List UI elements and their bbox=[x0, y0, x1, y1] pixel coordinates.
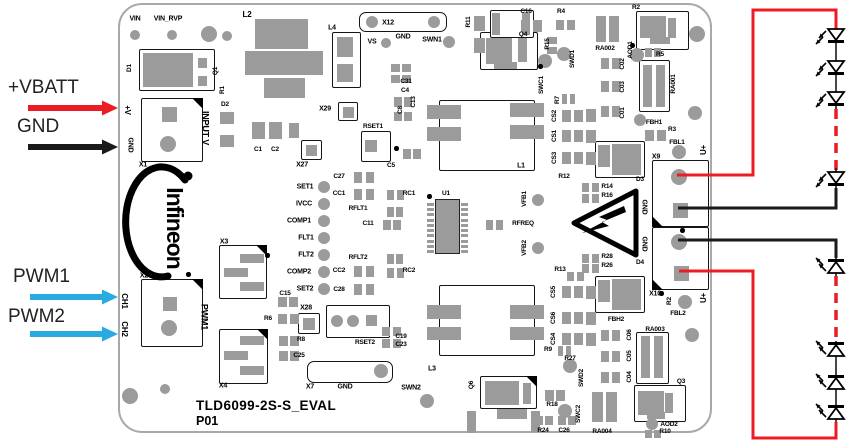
smd-pad bbox=[474, 16, 485, 31]
smd-pad bbox=[601, 106, 609, 117]
test-point bbox=[318, 181, 330, 193]
smd-pad bbox=[366, 284, 374, 295]
silkscreen-label: RA002 bbox=[595, 46, 614, 53]
silkscreen-label: SWD2 bbox=[579, 369, 586, 387]
test-point bbox=[347, 315, 359, 327]
led-part bbox=[828, 29, 844, 40]
silkscreen-label: CS2 bbox=[552, 110, 559, 122]
ic-pin bbox=[427, 219, 434, 222]
silkscreen-label: COMP1 bbox=[287, 218, 311, 225]
silkscreen-label: R5 bbox=[656, 52, 664, 59]
led-part bbox=[828, 408, 844, 419]
silkscreen-label: X1 bbox=[139, 162, 147, 169]
led-symbol bbox=[816, 172, 844, 187]
test-point bbox=[428, 16, 440, 28]
test-point bbox=[160, 136, 176, 152]
silkscreen-label: U1 bbox=[442, 191, 450, 198]
silkscreen-label: R8 bbox=[297, 337, 305, 344]
silkscreen-label: Q1 bbox=[213, 67, 220, 75]
smd-pad bbox=[586, 130, 596, 143]
silkscreen-label: FBL1 bbox=[669, 140, 684, 147]
silkscreen-label: R4 bbox=[557, 9, 565, 16]
smd-pad bbox=[354, 284, 362, 295]
silkscreen-label: Q3 bbox=[677, 379, 685, 386]
ic-pin bbox=[427, 224, 434, 227]
smd-pad bbox=[598, 280, 610, 302]
test-point bbox=[318, 215, 330, 227]
smd-pad bbox=[290, 314, 299, 324]
smd-pad bbox=[393, 220, 401, 230]
silkscreen-label: C26 bbox=[558, 428, 569, 435]
silkscreen-label: COMP2 bbox=[287, 269, 311, 276]
smd-pad bbox=[366, 315, 377, 326]
smd-pad bbox=[264, 78, 305, 98]
silkscreen-label: CH2 bbox=[120, 321, 128, 336]
pwm2-arrow-head bbox=[102, 327, 118, 342]
silkscreen-label: GND bbox=[641, 200, 648, 215]
smd-pad bbox=[612, 372, 620, 383]
silkscreen-label: INPUT V bbox=[201, 111, 210, 145]
smd-pad bbox=[592, 194, 599, 203]
smd-pad bbox=[609, 16, 619, 42]
test-point bbox=[366, 16, 378, 28]
ic-pin bbox=[427, 234, 434, 237]
test-point bbox=[558, 404, 572, 418]
corner-mark bbox=[256, 245, 267, 256]
board-title: TLD6099-2S-S_EVAL bbox=[196, 398, 336, 413]
ic-pin bbox=[461, 203, 468, 206]
smd-pad bbox=[612, 351, 620, 362]
smd-pad bbox=[645, 130, 654, 141]
smd-pad bbox=[427, 105, 461, 119]
smd-pad bbox=[592, 254, 599, 263]
silkscreen-label: AOD1 bbox=[628, 41, 635, 58]
silkscreen-label: IVCC bbox=[296, 201, 312, 208]
smd-pad bbox=[612, 330, 620, 341]
smd-pad bbox=[492, 13, 500, 35]
silkscreen-label: RA001 bbox=[671, 74, 678, 93]
smd-pad bbox=[592, 392, 603, 422]
led-symbol bbox=[816, 341, 844, 356]
silkscreen-label: C27 bbox=[333, 174, 344, 181]
silkscreen-label: R10 bbox=[659, 429, 670, 436]
test-point bbox=[318, 232, 330, 244]
smd-pad bbox=[391, 64, 400, 72]
smd-pad bbox=[143, 53, 193, 87]
silkscreen-label: X28 bbox=[300, 305, 312, 312]
silkscreen-label: C5 bbox=[387, 163, 395, 170]
smd-pad bbox=[403, 149, 411, 159]
ic-pin bbox=[461, 229, 468, 232]
silkscreen-label: GND bbox=[396, 34, 411, 41]
smd-pad bbox=[665, 393, 673, 413]
smd-pad bbox=[391, 75, 400, 83]
silkscreen-label: C11 bbox=[363, 221, 374, 228]
silkscreen-label: R2 bbox=[667, 297, 674, 305]
smd-pad bbox=[303, 318, 315, 330]
smd-pad bbox=[162, 107, 177, 122]
silkscreen-label: R14 bbox=[601, 184, 612, 191]
silkscreen-label: C28 bbox=[333, 287, 344, 294]
led-part bbox=[819, 177, 824, 182]
led-part bbox=[816, 69, 823, 76]
smd-pad bbox=[220, 112, 234, 124]
silkscreen-label: R12 bbox=[558, 174, 569, 181]
test-point bbox=[318, 198, 330, 210]
smd-pad bbox=[545, 390, 554, 401]
pwm1-arrow-head bbox=[102, 290, 118, 305]
smd-pad bbox=[612, 279, 641, 310]
corner-mark bbox=[526, 376, 537, 387]
smd-pad bbox=[562, 286, 571, 298]
led-part bbox=[816, 100, 823, 107]
silkscreen-label: C06 bbox=[627, 329, 634, 340]
ic-pin bbox=[461, 245, 468, 248]
smd-pad bbox=[612, 144, 641, 175]
smd-pad bbox=[366, 172, 374, 183]
smd-pad bbox=[562, 152, 571, 164]
silkscreen-label: L4 bbox=[328, 25, 336, 32]
smd-pad bbox=[198, 58, 207, 68]
silkscreen-label: +V bbox=[123, 105, 131, 115]
led-part bbox=[816, 374, 821, 379]
silkscreen-label: C31 bbox=[400, 79, 411, 86]
smd-pad bbox=[606, 392, 617, 422]
silkscreen-label: C03 bbox=[620, 81, 627, 92]
smd-pad bbox=[163, 297, 177, 311]
smd-pad bbox=[365, 140, 377, 152]
ic-pin bbox=[427, 250, 434, 253]
silkscreen-label: Q6 bbox=[469, 381, 476, 389]
pwm1-label: PWM1 bbox=[13, 266, 70, 288]
silkscreen-label: VFB2 bbox=[522, 240, 529, 256]
silkscreen-label: CS5 bbox=[551, 286, 558, 298]
silkscreen-label: C01 bbox=[620, 107, 627, 118]
silkscreen-label: R27 bbox=[564, 356, 575, 363]
corner-mark bbox=[257, 329, 268, 340]
smd-pad bbox=[533, 20, 542, 32]
smd-pad bbox=[601, 58, 609, 69]
silkscreen-label: X12 bbox=[382, 20, 394, 27]
test-point bbox=[161, 320, 177, 336]
silkscreen-label: C05 bbox=[627, 350, 634, 361]
silkscreen-label: X7 bbox=[306, 384, 314, 391]
led-part bbox=[819, 347, 826, 354]
smd-pad bbox=[574, 130, 583, 142]
smd-pad bbox=[245, 51, 323, 75]
smd-pad bbox=[673, 203, 688, 218]
led-part bbox=[828, 40, 844, 43]
led-part bbox=[828, 375, 844, 378]
silkscreen-label: C19 bbox=[395, 334, 406, 341]
silkscreen-label: C2 bbox=[271, 147, 279, 154]
smd-pad bbox=[645, 48, 652, 57]
smd-pad bbox=[556, 20, 564, 30]
silkscreen-label: X2 bbox=[140, 273, 148, 280]
silkscreen-label: C25 bbox=[293, 353, 304, 360]
silkscreen-label: SET2 bbox=[297, 286, 314, 293]
smd-pad bbox=[220, 135, 234, 147]
silkscreen-label: SET1 bbox=[297, 184, 314, 191]
silkscreen-label: X10 bbox=[649, 291, 661, 298]
smd-pad bbox=[510, 327, 544, 340]
led-part bbox=[819, 63, 826, 70]
test-point bbox=[634, 114, 646, 126]
smd-pad bbox=[601, 330, 609, 341]
ic-u1 bbox=[435, 199, 460, 254]
smd-pad bbox=[387, 268, 394, 278]
led-part bbox=[816, 404, 821, 409]
led-part bbox=[816, 258, 823, 265]
smd-pad bbox=[343, 107, 354, 118]
smd-pad bbox=[510, 103, 544, 117]
led-part bbox=[819, 264, 826, 271]
ic-pin bbox=[461, 224, 468, 227]
silkscreen-label: CS4 bbox=[551, 333, 558, 345]
ic-pin bbox=[461, 234, 468, 237]
vbatt-arrow-head bbox=[102, 101, 118, 116]
led-part bbox=[816, 404, 823, 411]
test-point bbox=[688, 106, 702, 120]
test-point bbox=[201, 26, 217, 42]
smd-pad bbox=[598, 145, 610, 167]
silkscreen-label: R6 bbox=[264, 316, 272, 323]
test-point bbox=[122, 388, 138, 404]
smd-pad bbox=[467, 411, 476, 433]
silkscreen-label: C1 bbox=[254, 147, 262, 154]
silkscreen-label: X29 bbox=[319, 106, 331, 113]
led-part bbox=[828, 405, 844, 408]
silkscreen-label: U+ bbox=[700, 293, 708, 303]
smd-pad bbox=[592, 264, 599, 273]
smd-pad bbox=[402, 64, 411, 72]
smd-pad bbox=[387, 254, 394, 264]
led-symbol bbox=[816, 61, 844, 76]
pin1-dot bbox=[680, 228, 685, 233]
silkscreen-label: L3 bbox=[428, 366, 436, 373]
smd-pad bbox=[486, 220, 493, 230]
smd-pad bbox=[582, 194, 589, 203]
silkscreen-label: X4 bbox=[219, 383, 227, 390]
smd-pad bbox=[586, 286, 596, 299]
led-part bbox=[828, 262, 844, 273]
test-point bbox=[222, 31, 232, 41]
smd-pad bbox=[654, 336, 663, 378]
smd-pad bbox=[574, 312, 583, 324]
silkscreen-label: R1 bbox=[220, 86, 227, 94]
silkscreen-label: VS bbox=[368, 39, 377, 46]
silkscreen-label: VFB1 bbox=[522, 191, 529, 207]
silkscreen-label: FLT2 bbox=[298, 252, 313, 259]
silkscreen-label: CS1 bbox=[552, 130, 559, 142]
smd-pad bbox=[574, 333, 583, 345]
silkscreen-label: VIN_RVP bbox=[154, 16, 182, 23]
test-point bbox=[167, 30, 177, 40]
smd-pad bbox=[366, 189, 374, 200]
smd-pad bbox=[567, 272, 574, 281]
smd-pad bbox=[586, 312, 596, 325]
smd-pad bbox=[278, 297, 287, 307]
silkscreen-label: D2 bbox=[221, 102, 229, 109]
smd-pad bbox=[570, 94, 575, 104]
test-point bbox=[160, 384, 170, 394]
silkscreen-label: SWC1 bbox=[539, 76, 546, 94]
smd-pad bbox=[382, 327, 390, 336]
smd-pad bbox=[337, 64, 353, 82]
smd-pad bbox=[545, 416, 553, 425]
smd-pad bbox=[289, 297, 298, 307]
silkscreen-label: C13 bbox=[411, 96, 418, 107]
smd-pad bbox=[574, 152, 583, 164]
silkscreen-label: R13 bbox=[554, 267, 565, 274]
silkscreen-label: SWC2 bbox=[576, 405, 583, 423]
silkscreen-label: RSET1 bbox=[363, 124, 383, 131]
smd-pad bbox=[601, 372, 609, 383]
test-point bbox=[130, 30, 140, 40]
smd-pad bbox=[289, 123, 299, 138]
smd-pad bbox=[306, 145, 317, 156]
silkscreen-label: RC2 bbox=[403, 268, 415, 275]
smd-pad bbox=[567, 20, 575, 30]
silkscreen-label: X27 bbox=[296, 162, 308, 169]
silkscreen-label: R9 bbox=[544, 347, 552, 354]
smd-pad bbox=[562, 130, 571, 142]
smd-pad bbox=[562, 333, 571, 345]
silkscreen-label: RC1 bbox=[403, 191, 415, 198]
silkscreen-label: SWN1 bbox=[422, 37, 441, 44]
silkscreen-label: C23 bbox=[395, 342, 406, 349]
smd-pad bbox=[645, 430, 652, 438]
led-part bbox=[828, 103, 844, 106]
smd-pad bbox=[427, 127, 461, 141]
silkscreen-label: GND bbox=[127, 138, 134, 153]
led-part bbox=[816, 37, 823, 44]
led-part bbox=[819, 380, 824, 385]
led-part bbox=[828, 378, 844, 389]
smd-pad bbox=[556, 390, 565, 401]
corner-mark bbox=[652, 216, 663, 227]
ic-pin bbox=[461, 240, 468, 243]
smd-pad bbox=[601, 351, 609, 362]
smd-pad bbox=[474, 38, 485, 53]
led-part bbox=[816, 40, 821, 45]
pin1-dot bbox=[538, 64, 543, 69]
smd-pad bbox=[650, 37, 670, 44]
led-part bbox=[816, 183, 821, 188]
smd-pad bbox=[396, 254, 403, 264]
smd-pad bbox=[668, 18, 676, 38]
smd-pad bbox=[562, 94, 567, 104]
silkscreen-label: SWN2 bbox=[401, 385, 420, 392]
smd-pad bbox=[640, 16, 666, 38]
ic-pin bbox=[427, 208, 434, 211]
smd-pad bbox=[354, 172, 362, 183]
silkscreen-label: C04 bbox=[627, 371, 634, 382]
silkscreen-label: C16 bbox=[520, 9, 531, 16]
corner-mark bbox=[652, 279, 663, 290]
smd-pad bbox=[510, 305, 544, 319]
silkscreen-label: R28 bbox=[601, 254, 612, 261]
smd-pad bbox=[494, 62, 517, 69]
smd-pad bbox=[586, 333, 596, 346]
led-part bbox=[816, 72, 821, 77]
led-symbol bbox=[816, 92, 844, 107]
led-part bbox=[819, 94, 826, 101]
ic-pin bbox=[427, 240, 434, 243]
smd-pad bbox=[574, 110, 583, 122]
silkscreen-label: X9 bbox=[652, 154, 660, 161]
test-point bbox=[532, 242, 544, 254]
silkscreen-label: RFLT1 bbox=[349, 206, 368, 213]
test-point bbox=[672, 145, 686, 159]
smd-pad bbox=[224, 351, 248, 360]
smd-pad bbox=[387, 207, 394, 217]
test-point bbox=[646, 418, 658, 430]
smd-pad bbox=[252, 122, 265, 139]
smd-pad bbox=[641, 336, 650, 378]
silkscreen-label: L1 bbox=[517, 163, 525, 170]
smd-pad bbox=[269, 122, 282, 139]
led-part bbox=[819, 31, 826, 38]
silkscreen-label: FBL2 bbox=[670, 311, 685, 318]
led-part bbox=[819, 410, 826, 417]
test-point bbox=[420, 394, 434, 408]
led-part bbox=[828, 183, 844, 186]
smd-pad bbox=[387, 190, 394, 200]
smd-pad bbox=[656, 65, 665, 107]
pin1-dot bbox=[427, 194, 432, 199]
silkscreen-label: D4 bbox=[636, 260, 644, 267]
smd-pad bbox=[582, 183, 589, 192]
corner-mark bbox=[192, 279, 203, 290]
test-point bbox=[318, 249, 330, 261]
silkscreen-label: R3 bbox=[668, 127, 676, 134]
silkscreen-label: CS6 bbox=[551, 312, 558, 324]
silkscreen-label: VIN bbox=[129, 16, 140, 23]
pcb-connection-diagram: +VBATTGNDPWM1PWM2 TLD6099-2S-S_EVAL P01 … bbox=[0, 0, 850, 446]
smd-pad bbox=[366, 266, 374, 277]
smd-pad bbox=[496, 220, 503, 230]
led-part bbox=[816, 341, 823, 348]
silkscreen-label: RFREQ bbox=[512, 221, 534, 228]
led-part bbox=[828, 61, 844, 72]
silkscreen-label: FLT1 bbox=[298, 235, 313, 242]
smd-pad bbox=[562, 312, 571, 324]
silkscreen-label: Q4 bbox=[519, 32, 527, 39]
silkscreen-label: R26 bbox=[601, 263, 612, 270]
smd-pad bbox=[518, 38, 527, 62]
silkscreen-label: C02 bbox=[620, 58, 627, 69]
smd-pad bbox=[413, 149, 421, 159]
silkscreen-label: CH1 bbox=[120, 293, 128, 308]
silkscreen-label: GND bbox=[338, 384, 353, 391]
led-part bbox=[816, 258, 821, 263]
led-part bbox=[819, 410, 824, 415]
silkscreen-label: R16 bbox=[601, 193, 612, 200]
led-part bbox=[828, 259, 844, 262]
pin1-dot bbox=[394, 146, 399, 151]
smd-pad bbox=[255, 19, 308, 49]
smd-pad bbox=[279, 351, 288, 361]
ic-pin bbox=[461, 213, 468, 216]
silkscreen-label: CC1 bbox=[333, 191, 345, 198]
led-part bbox=[816, 180, 823, 187]
silkscreen-label: RFLT2 bbox=[349, 255, 368, 262]
silkscreen-label: CC2 bbox=[333, 268, 345, 275]
silkscreen-label: RA003 bbox=[645, 327, 664, 334]
smd-pad bbox=[582, 254, 589, 263]
smd-pad bbox=[577, 272, 584, 281]
